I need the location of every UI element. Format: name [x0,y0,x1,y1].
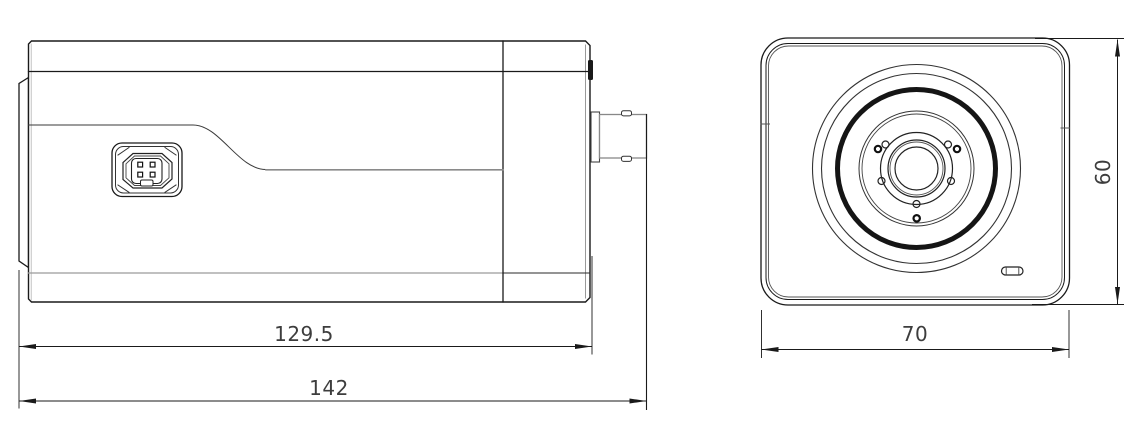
arrowhead-left [19,399,36,404]
dimension-front-height: 60 [1091,40,1120,305]
drawing-canvas: 129.5 142 [0,0,1145,430]
power-connector [112,143,182,197]
arrowhead-up [1115,40,1120,57]
arrowhead-left [762,347,779,352]
connector-pin [138,172,143,177]
lens-mount-lip [19,78,29,268]
arrowhead-right [1052,347,1069,352]
bnc-base [591,112,600,162]
led-indicator-slot [1002,267,1024,275]
bnc-barrel [600,115,647,159]
connector-key-notch [141,180,154,186]
dimension-total-length: 142 [19,376,647,404]
arrowhead-right [630,399,647,404]
dimension-label-body-length: 129.5 [274,322,334,346]
dimension-label-front-width: 70 [902,322,928,346]
technical-drawing: 129.5 142 [0,0,1145,430]
back-latch [588,60,593,80]
dimension-label-front-height: 60 [1091,159,1115,185]
bnc-bayonet-pin-bottom [622,156,632,161]
connector-pin [138,162,143,167]
dimension-front-width: 70 [762,322,1070,352]
front-face-outline [761,38,1070,305]
connector-pin [150,162,155,167]
bnc-bayonet-pin-top [622,111,632,116]
dimension-label-total-length: 142 [309,376,349,400]
connector-pin [150,172,155,177]
arrowhead-right [575,344,592,349]
arrowhead-down [1115,287,1120,304]
bnc-connector [591,111,647,162]
arrowhead-left [19,344,36,349]
front-view [761,38,1070,305]
side-view [19,41,647,302]
dimension-body-length: 129.5 [19,322,592,349]
